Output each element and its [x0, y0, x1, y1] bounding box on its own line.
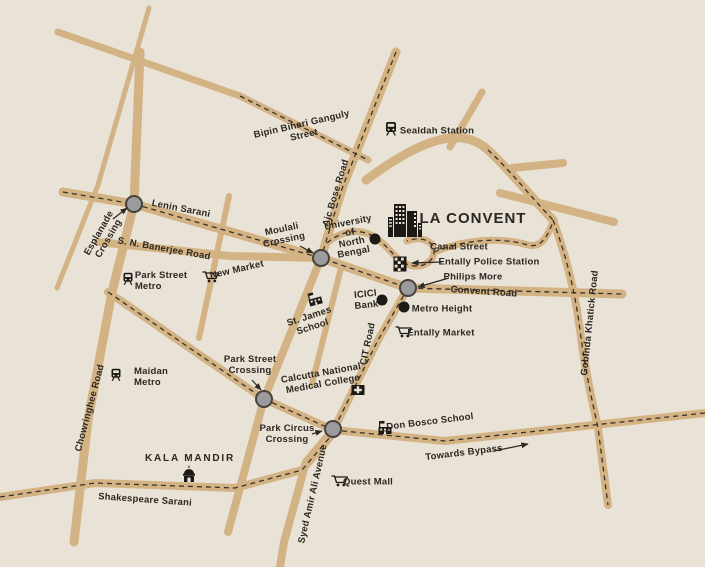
road-new-market-vertical [199, 196, 229, 338]
towards-bypass-arrow [494, 444, 528, 451]
train-station-icon [386, 122, 396, 135]
esplanade-crossing-arrow [113, 208, 127, 219]
poi-dot-metro-height [399, 302, 410, 313]
cart-icon-entally-market [396, 327, 411, 337]
road-gobinda-khatick [553, 220, 608, 505]
park-circus-crossing-arrow [312, 431, 322, 434]
metro-icon-park-street [124, 273, 133, 285]
road-st-james-connector [312, 264, 342, 384]
buildings-logo-icon [388, 204, 422, 237]
poi-dot-university-north-bengal [370, 234, 381, 245]
map-canvas [0, 0, 705, 567]
road-chowringhee [74, 52, 140, 542]
police-station-icon [394, 257, 407, 272]
cart-icon-quest-mall [332, 476, 347, 486]
road-shakespeare-sarani [0, 436, 331, 497]
road-moulali-south [228, 258, 321, 532]
node-park-circus-crossing [325, 421, 341, 437]
node-esplanade-crossing [126, 196, 142, 212]
road-branch-east-stub [512, 163, 563, 168]
entally-police-station-arrow [412, 262, 442, 263]
road-syed-amir-ali-avenue [280, 430, 333, 567]
node-philips-more [400, 280, 416, 296]
location-map: Bipin Bihari Ganguly Street Sealdah Stat… [0, 0, 705, 567]
poi-dot-icici-bank [377, 295, 388, 306]
road-bipin-bihari-ganguly-street [58, 32, 368, 160]
hospital-icon-medical-college [352, 385, 365, 395]
road-ajc-bose [321, 52, 396, 258]
temple-icon-kala-mandir [183, 465, 195, 482]
road-canal-street-loop [327, 222, 553, 266]
metro-icon-maidan [112, 369, 121, 381]
node-moulali-crossing [313, 250, 329, 266]
school-icon-don-bosco [379, 421, 392, 434]
road-branch-right-edge [500, 193, 614, 222]
node-park-street-crossing [256, 391, 272, 407]
